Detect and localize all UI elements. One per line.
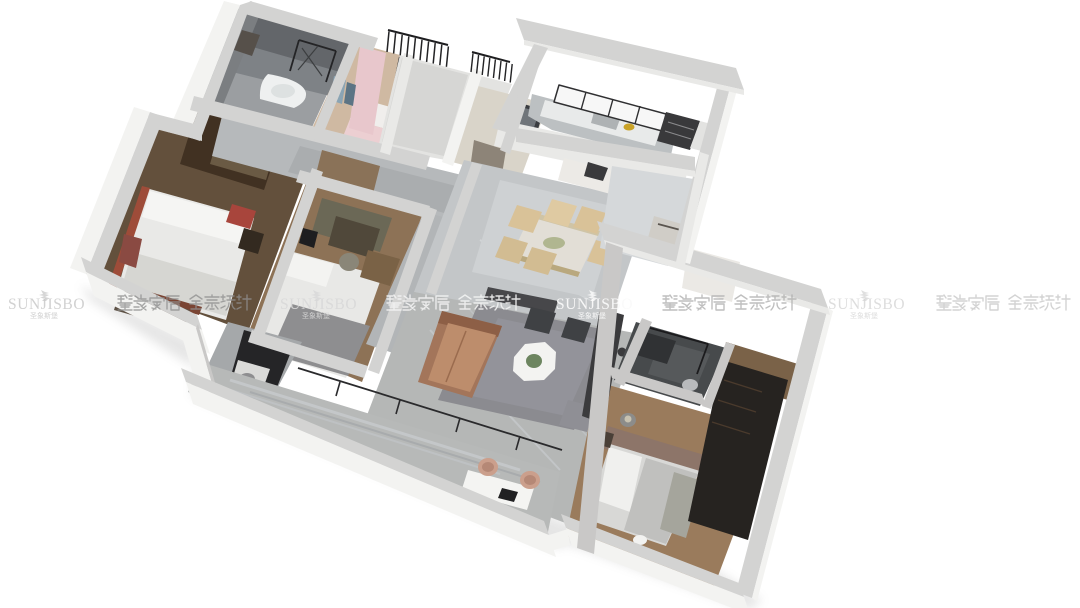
svg-text:圣象斯堡: 圣象斯堡 — [30, 311, 58, 320]
svg-text:圣象斯堡: 圣象斯堡 — [302, 311, 330, 320]
svg-text:圣象斯堡: 圣象斯堡 — [578, 311, 606, 320]
svg-text:圣象斯堡: 圣象斯堡 — [850, 311, 878, 320]
